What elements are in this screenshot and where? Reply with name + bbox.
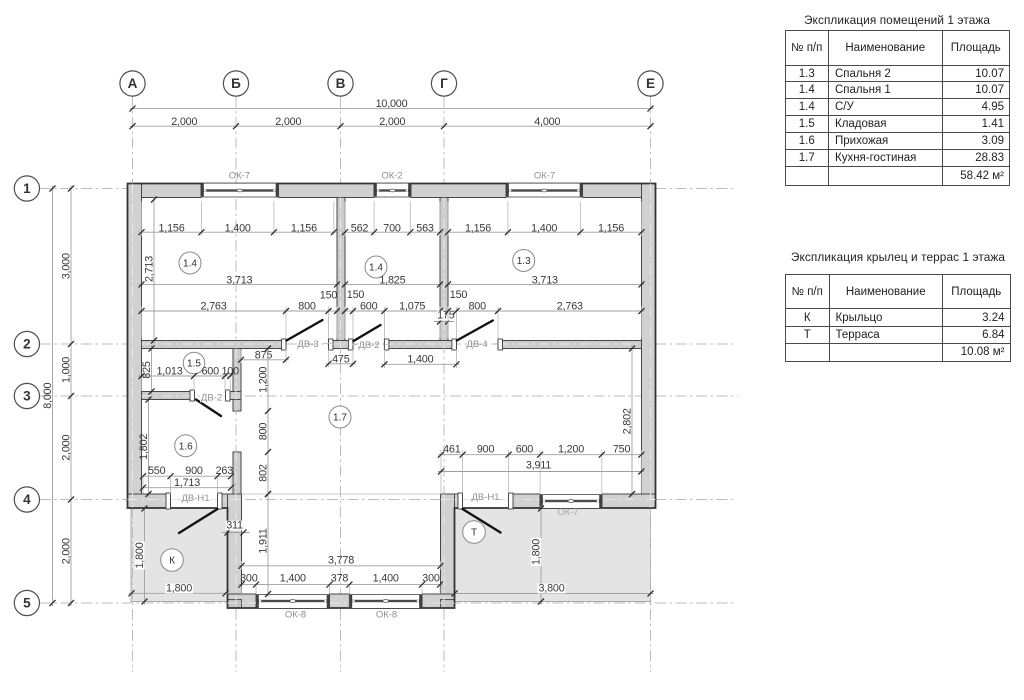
- svg-text:Е: Е: [646, 76, 655, 91]
- svg-text:3: 3: [23, 389, 31, 404]
- svg-text:1,911: 1,911: [258, 528, 270, 553]
- svg-text:550: 550: [148, 465, 166, 477]
- svg-text:1,400: 1,400: [373, 572, 399, 584]
- svg-text:311: 311: [226, 520, 243, 532]
- svg-text:2: 2: [23, 337, 31, 352]
- svg-text:10,000: 10,000: [376, 98, 408, 110]
- svg-text:600: 600: [360, 301, 378, 313]
- svg-text:2,000: 2,000: [61, 435, 73, 461]
- svg-text:1,802: 1,802: [138, 434, 150, 460]
- svg-text:1,400: 1,400: [280, 572, 306, 584]
- svg-text:150: 150: [347, 289, 365, 301]
- svg-text:ОК-2: ОК-2: [381, 171, 402, 182]
- svg-text:ДВ-4: ДВ-4: [466, 339, 487, 350]
- svg-text:100: 100: [221, 365, 239, 377]
- svg-text:ДВ-3: ДВ-3: [297, 339, 318, 350]
- svg-text:8,000: 8,000: [42, 383, 54, 409]
- svg-text:1,400: 1,400: [407, 354, 433, 366]
- svg-text:875: 875: [255, 349, 273, 361]
- svg-text:2,000: 2,000: [171, 116, 197, 128]
- svg-text:2,000: 2,000: [379, 116, 405, 128]
- svg-text:750: 750: [613, 443, 631, 455]
- svg-text:1,200: 1,200: [258, 367, 270, 393]
- svg-text:2,000: 2,000: [61, 538, 73, 564]
- svg-text:1,000: 1,000: [61, 357, 73, 383]
- svg-text:800: 800: [298, 301, 316, 313]
- svg-text:1,013: 1,013: [156, 365, 182, 377]
- svg-text:3,000: 3,000: [61, 253, 73, 279]
- svg-text:ОК-7: ОК-7: [229, 171, 250, 182]
- svg-text:1,156: 1,156: [291, 223, 317, 235]
- svg-text:ОК-7: ОК-7: [557, 507, 578, 518]
- svg-text:600: 600: [516, 443, 534, 455]
- svg-text:5: 5: [23, 596, 31, 611]
- svg-text:1,200: 1,200: [558, 443, 584, 455]
- svg-text:1: 1: [23, 181, 31, 196]
- svg-text:3,778: 3,778: [328, 555, 354, 567]
- svg-text:1,400: 1,400: [225, 223, 251, 235]
- svg-text:1,713: 1,713: [174, 477, 200, 489]
- svg-text:1,400: 1,400: [531, 223, 557, 235]
- svg-text:Б: Б: [231, 76, 241, 91]
- svg-text:300: 300: [422, 572, 440, 584]
- svg-text:150: 150: [450, 289, 468, 301]
- svg-text:802: 802: [258, 464, 270, 482]
- svg-text:900: 900: [185, 465, 203, 477]
- svg-text:150: 150: [320, 289, 338, 301]
- svg-text:1,800: 1,800: [166, 582, 192, 594]
- svg-text:600: 600: [201, 365, 219, 377]
- svg-text:1,800: 1,800: [134, 542, 146, 568]
- svg-text:1.6: 1.6: [179, 441, 193, 452]
- svg-text:ОК-8: ОК-8: [376, 610, 397, 621]
- svg-text:2,802: 2,802: [622, 408, 634, 434]
- svg-text:К: К: [169, 556, 175, 567]
- svg-text:1,800: 1,800: [531, 539, 543, 565]
- svg-text:378: 378: [331, 572, 349, 584]
- svg-text:ДВ-2: ДВ-2: [358, 340, 379, 351]
- svg-text:А: А: [128, 76, 138, 91]
- svg-text:ДВ-Н1: ДВ-Н1: [181, 493, 209, 504]
- svg-text:825: 825: [141, 361, 153, 379]
- svg-text:1.5: 1.5: [187, 359, 201, 370]
- svg-text:Т: Т: [471, 528, 477, 539]
- svg-text:2,713: 2,713: [144, 256, 156, 282]
- svg-text:ДВ-2: ДВ-2: [201, 392, 222, 403]
- svg-text:2,763: 2,763: [200, 301, 226, 313]
- svg-text:461: 461: [443, 443, 461, 455]
- svg-text:300: 300: [240, 572, 258, 584]
- svg-text:ДВ-Н1: ДВ-Н1: [471, 492, 499, 503]
- svg-text:3,911: 3,911: [526, 459, 551, 471]
- svg-text:ОК-8: ОК-8: [285, 610, 306, 621]
- svg-text:ОК-7: ОК-7: [534, 171, 555, 182]
- svg-text:1.3: 1.3: [517, 256, 531, 267]
- svg-text:800: 800: [258, 423, 270, 441]
- svg-text:475: 475: [332, 353, 350, 365]
- svg-text:4: 4: [23, 492, 31, 507]
- svg-text:800: 800: [468, 301, 486, 313]
- svg-text:1,825: 1,825: [379, 274, 405, 286]
- svg-text:563: 563: [416, 223, 434, 235]
- svg-text:1,156: 1,156: [158, 223, 184, 235]
- svg-text:3,800: 3,800: [538, 582, 564, 594]
- svg-text:3,713: 3,713: [226, 274, 252, 286]
- svg-text:Г: Г: [440, 76, 448, 91]
- svg-text:900: 900: [477, 443, 495, 455]
- svg-text:1,156: 1,156: [465, 223, 491, 235]
- svg-text:1,075: 1,075: [399, 301, 425, 313]
- svg-text:1.7: 1.7: [333, 413, 347, 424]
- svg-text:1.4: 1.4: [369, 263, 383, 274]
- svg-text:1.4: 1.4: [183, 259, 197, 270]
- svg-text:2,000: 2,000: [275, 116, 301, 128]
- svg-text:263: 263: [216, 465, 234, 477]
- svg-text:700: 700: [383, 223, 401, 235]
- svg-text:3,713: 3,713: [532, 274, 558, 286]
- svg-text:В: В: [336, 76, 346, 91]
- svg-text:562: 562: [351, 223, 369, 235]
- svg-text:4,000: 4,000: [534, 116, 560, 128]
- svg-text:2,763: 2,763: [557, 301, 583, 313]
- svg-text:1,156: 1,156: [598, 223, 624, 235]
